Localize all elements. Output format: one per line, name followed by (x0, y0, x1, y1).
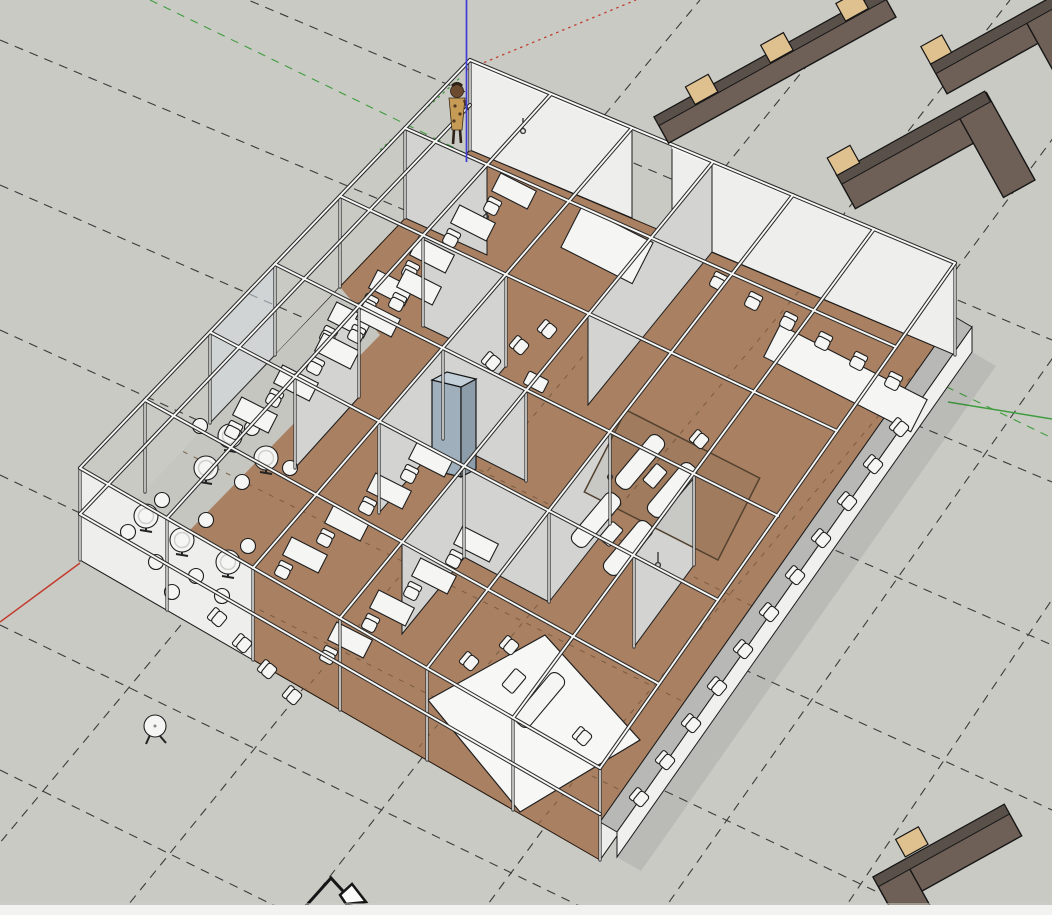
stool[interactable] (235, 475, 250, 490)
stool[interactable] (155, 493, 170, 508)
stool[interactable] (241, 539, 256, 554)
viewport-canvas[interactable] (0, 0, 1052, 915)
model-viewport[interactable] (0, 0, 1052, 915)
stool[interactable] (199, 513, 214, 528)
window-edge-strip (0, 904, 1052, 915)
